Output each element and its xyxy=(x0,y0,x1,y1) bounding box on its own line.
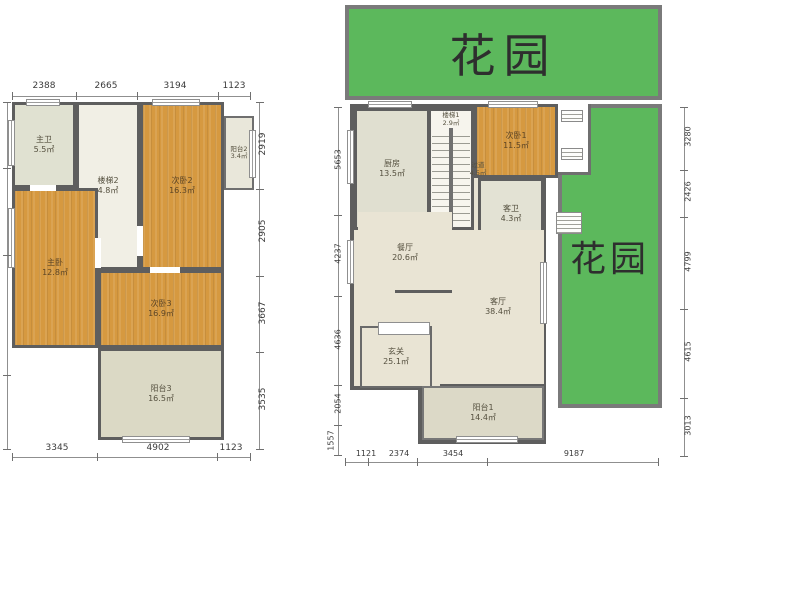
dim-tick xyxy=(76,92,77,100)
stair-flight xyxy=(453,130,470,226)
room-balcony-3: 阳台3 16.5㎡ xyxy=(98,348,224,440)
room-bedroom-2: 次卧2 16.3㎡ xyxy=(140,102,224,270)
door-gap xyxy=(95,238,101,268)
wall-segment xyxy=(440,384,544,386)
garden-top-label: 花园 xyxy=(450,20,558,86)
exterior-step xyxy=(556,212,582,234)
dim-tick xyxy=(256,102,264,103)
room-area: 4.5㎡ xyxy=(460,170,496,178)
room-area: 38.4㎡ xyxy=(485,307,511,317)
dim-label: 3667 xyxy=(258,293,268,333)
window-marker xyxy=(8,120,15,166)
dim-label: 2919 xyxy=(258,124,268,164)
dim-label: 2426 xyxy=(684,172,693,212)
window-marker xyxy=(122,436,190,443)
dim-line-bottom-right-plan xyxy=(345,462,658,463)
room-area: 3.4㎡ xyxy=(231,153,248,160)
room-master-bedroom: 主卧 12.8㎡ xyxy=(12,188,98,348)
dim-tick xyxy=(334,296,342,297)
room-balcony-1: 阳台1 14.4㎡ xyxy=(422,386,544,440)
dim-tick xyxy=(334,107,342,108)
window-marker xyxy=(488,101,538,108)
door-gap xyxy=(150,267,180,273)
room-label: 餐厅 xyxy=(397,243,413,253)
dim-tick xyxy=(218,92,219,100)
room-master-bath: 主卫 5.5㎡ xyxy=(12,102,76,188)
room-living: 客厅 38.4㎡ xyxy=(452,230,544,384)
room-label: 主卧 xyxy=(47,258,63,268)
dim-label: 3013 xyxy=(684,406,693,446)
dim-label: 3194 xyxy=(153,81,197,91)
room-label: 楼梯2 xyxy=(97,176,118,186)
window-marker xyxy=(152,99,200,106)
dim-tick xyxy=(256,276,264,277)
room-area: 16.9㎡ xyxy=(148,309,174,319)
room-area: 25.1㎡ xyxy=(383,357,409,367)
room-area: 2.9㎡ xyxy=(430,120,472,128)
stairs-1-label: 楼梯1 2.9㎡ xyxy=(430,112,472,128)
dim-tick xyxy=(12,453,13,461)
window-marker xyxy=(249,130,256,178)
dim-tick xyxy=(250,92,251,100)
room-area: 5.5㎡ xyxy=(34,145,55,155)
dim-tick xyxy=(368,458,369,466)
dim-label: 2388 xyxy=(22,81,66,91)
room-area: 11.5㎡ xyxy=(503,141,529,151)
dim-label: 9187 xyxy=(552,449,596,458)
dim-tick xyxy=(256,189,264,190)
window-marker xyxy=(456,436,518,443)
door-gap xyxy=(30,185,56,191)
room-label: 阳台1 xyxy=(472,403,493,413)
window-marker xyxy=(561,110,583,122)
dim-tick xyxy=(3,449,11,450)
dim-label: 1557 xyxy=(327,421,336,461)
window-marker xyxy=(347,130,354,184)
dim-tick xyxy=(217,453,218,461)
room-area: 4.8㎡ xyxy=(98,186,119,196)
dim-label: 1123 xyxy=(209,443,253,453)
dim-tick xyxy=(680,456,688,457)
dim-tick xyxy=(680,309,688,310)
dim-label: 1123 xyxy=(212,81,256,91)
dim-tick xyxy=(256,352,264,353)
dim-label: 4902 xyxy=(136,443,180,453)
dim-label: 2665 xyxy=(84,81,128,91)
room-label: 厨房 xyxy=(384,159,400,169)
room-area: 12.8㎡ xyxy=(42,268,68,278)
window-marker xyxy=(26,99,60,106)
dim-tick xyxy=(3,102,11,103)
dim-tick xyxy=(3,168,11,169)
dim-tick xyxy=(487,458,488,466)
room-area: 13.5㎡ xyxy=(379,169,405,179)
entry-door xyxy=(378,322,430,335)
dim-label: 2905 xyxy=(258,211,268,251)
dim-tick xyxy=(3,255,11,256)
dim-tick xyxy=(417,458,418,466)
door-gap xyxy=(137,226,143,256)
dim-tick xyxy=(250,453,251,461)
dim-label: 3454 xyxy=(431,449,475,458)
dim-tick xyxy=(3,375,11,376)
room-label: 客厅 xyxy=(490,297,506,307)
dim-tick xyxy=(345,458,346,466)
dim-line-right-right-plan xyxy=(684,107,685,456)
window-marker xyxy=(368,101,412,108)
room-area: 16.5㎡ xyxy=(148,394,174,404)
window-marker xyxy=(8,208,15,268)
room-dining: 餐厅 20.6㎡ xyxy=(358,212,452,294)
dim-label: 4636 xyxy=(334,320,343,360)
dim-tick xyxy=(137,92,138,100)
dim-tick xyxy=(680,398,688,399)
dim-label: 4799 xyxy=(684,242,693,282)
dim-tick xyxy=(334,215,342,216)
dim-label: 4237 xyxy=(334,234,343,274)
window-marker xyxy=(347,240,354,284)
room-area: 16.3㎡ xyxy=(169,186,195,196)
dim-label: 3535 xyxy=(258,379,268,419)
dim-label: 3345 xyxy=(35,443,79,453)
dim-tick xyxy=(680,107,688,108)
room-bedroom-3: 次卧3 16.9㎡ xyxy=(98,270,224,348)
dim-tick xyxy=(680,217,688,218)
garden-top: 花园 xyxy=(345,5,662,100)
room-label: 客卫 xyxy=(503,204,519,214)
hallway-label: 过道 4.5㎡ xyxy=(460,162,496,178)
room-label: 次卧1 xyxy=(505,131,526,141)
room-entry: 玄关 25.1㎡ xyxy=(360,326,432,388)
dim-label: 3280 xyxy=(684,117,693,157)
window-marker xyxy=(561,148,583,160)
room-label: 次卧2 xyxy=(171,176,192,186)
dim-tick xyxy=(256,449,264,450)
garden-right-label: 花园 xyxy=(570,230,650,282)
dim-line-top-left-plan xyxy=(12,96,250,97)
dim-line-left-left-plan xyxy=(7,102,8,449)
dim-line-bottom-left-plan xyxy=(12,457,250,458)
room-area: 14.4㎡ xyxy=(470,413,496,423)
room-label: 玄关 xyxy=(388,347,404,357)
room-area: 20.6㎡ xyxy=(392,253,418,263)
room-label: 次卧3 xyxy=(150,299,171,309)
room-area: 4.3㎡ xyxy=(501,214,522,224)
floor-cutout xyxy=(348,390,418,446)
dim-label: 5653 xyxy=(334,140,343,180)
room-label: 阳台3 xyxy=(150,384,171,394)
dim-label: 2054 xyxy=(334,384,343,424)
dim-tick xyxy=(658,458,659,466)
dim-tick xyxy=(97,453,98,461)
window-marker xyxy=(540,262,547,324)
room-label: 主卫 xyxy=(36,135,52,145)
dim-tick xyxy=(12,92,13,100)
dim-label: 4615 xyxy=(684,332,693,372)
wall-segment xyxy=(395,290,452,293)
dim-label: 2374 xyxy=(377,449,421,458)
